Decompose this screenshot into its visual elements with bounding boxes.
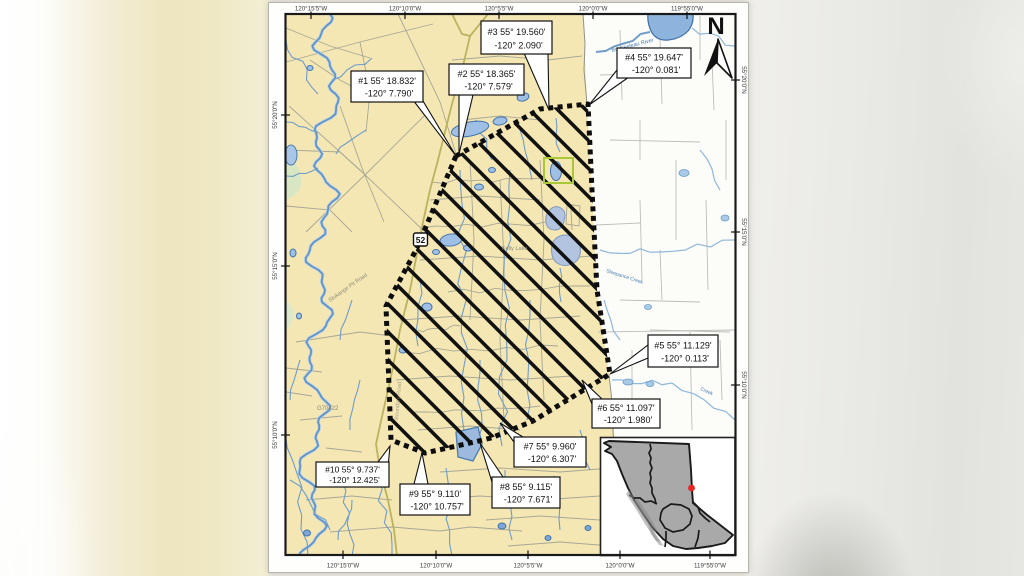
svg-text:-120° 7.579': -120° 7.579' [464, 82, 513, 92]
svg-text:-120° 7.790': -120° 7.790' [365, 89, 414, 99]
svg-text:52: 52 [416, 235, 426, 245]
svg-text:120°10'0"W: 120°10'0"W [420, 563, 452, 570]
svg-text:-120° 0.081': -120° 0.081' [632, 65, 681, 75]
svg-text:120°15'5"W: 120°15'5"W [295, 6, 327, 13]
svg-text:120°10'0"W: 120°10'0"W [389, 6, 421, 13]
svg-text:120°0'0"W: 120°0'0"W [579, 6, 608, 13]
svg-text:#6 55° 11.097': #6 55° 11.097' [597, 403, 654, 413]
svg-text:119°55'0"W: 119°55'0"W [694, 563, 726, 570]
svg-text:55°20'0"N: 55°20'0"N [272, 101, 279, 129]
svg-text:119°55'0"W: 119°55'0"W [671, 6, 703, 13]
svg-text:#9 55° 9.110': #9 55° 9.110' [409, 489, 461, 499]
svg-text:55°10'0"N: 55°10'0"N [740, 371, 747, 399]
svg-text:-120° 6.307': -120° 6.307' [528, 454, 577, 464]
svg-text:-120° 0.113': -120° 0.113' [661, 354, 709, 364]
svg-text:Kelly Lake: Kelly Lake [502, 246, 527, 252]
svg-text:120°0'0"W: 120°0'0"W [606, 563, 635, 570]
svg-text:#8 55° 9.115': #8 55° 9.115' [500, 482, 552, 492]
svg-text:N: N [707, 13, 724, 40]
svg-text:-120° 12.425': -120° 12.425' [329, 475, 380, 485]
svg-text:-120° 7.671': -120° 7.671' [504, 495, 553, 505]
svg-text:-120° 1.980': -120° 1.980' [604, 415, 653, 425]
svg-text:#10 55° 9.737': #10 55° 9.737' [325, 465, 380, 475]
svg-text:#4 55° 19.647': #4 55° 19.647' [625, 53, 683, 63]
svg-text:G70422: G70422 [317, 406, 339, 412]
svg-text:-120° 2.090': -120° 2.090' [494, 40, 543, 50]
svg-text:55°15'0"N: 55°15'0"N [272, 252, 279, 280]
svg-text:#1 55° 18.832': #1 55° 18.832' [358, 76, 416, 86]
svg-text:-120° 10.757': -120° 10.757' [410, 502, 464, 512]
svg-text:#5 55° 11.129': #5 55° 11.129' [654, 340, 711, 350]
svg-text:120°5'5"W: 120°5'5"W [514, 563, 543, 570]
svg-text:#2 55° 18.365': #2 55° 18.365' [458, 69, 516, 79]
svg-text:120°5'5"W: 120°5'5"W [485, 6, 514, 13]
svg-text:#3 55° 19.560': #3 55° 19.560' [488, 27, 546, 37]
svg-text:120°15'0"W: 120°15'0"W [327, 563, 359, 570]
svg-text:55°15'0"N: 55°15'0"N [740, 218, 747, 246]
svg-text:55°20'0"N: 55°20'0"N [740, 66, 747, 94]
svg-text:55°10'0"N: 55°10'0"N [272, 421, 279, 449]
svg-text:#7 55° 9.960': #7 55° 9.960' [524, 442, 577, 452]
